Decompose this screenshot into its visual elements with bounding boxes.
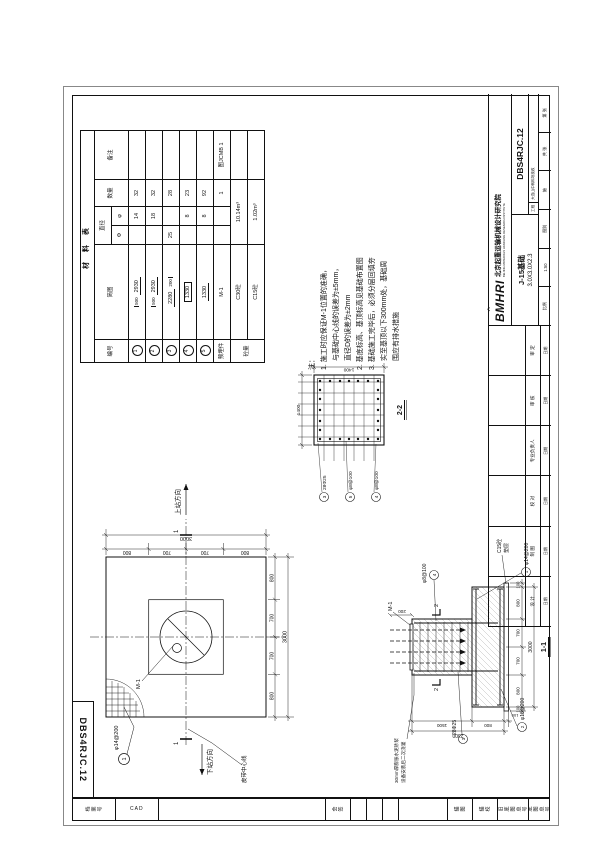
section-2-2-drawing: 1400 1400 3 28Φ25 5 φ8@100 4 φ8@100 (290, 357, 440, 507)
table-row: C15砼 1.02m³ (248, 131, 265, 363)
drawing-number: DBS4RJC.12 (512, 94, 529, 214)
col-header-dia-phi2: Φ (112, 226, 129, 245)
bar1-bubble: 1 (122, 757, 128, 760)
project-name: 大连山中转料场技改 (531, 165, 536, 201)
svg-text:700: 700 (516, 657, 521, 665)
svg-text:800: 800 (484, 723, 492, 728)
section11-m1: M-1 200 (388, 602, 414, 625)
svg-text:3: 3 (322, 495, 327, 498)
row-no-bubble: 3 (166, 346, 177, 357)
scale-value: 1:50 (539, 248, 551, 287)
svg-text:700: 700 (201, 549, 210, 555)
corner-drawing-number-box: DBS4RJC.12 (72, 701, 94, 799)
material-table-title: 材 料 表 (81, 131, 95, 363)
svg-text:φ18@200: φ18@200 (520, 698, 526, 720)
type-value: 施 (539, 170, 551, 209)
signature-col: 专业负责人 日期 (489, 425, 551, 475)
col-header-qty: 数量 (95, 180, 129, 207)
svg-text:4: 4 (374, 495, 379, 498)
section22-bar4-label: 4 φ8@100 (372, 444, 381, 502)
svg-text:2: 2 (434, 604, 440, 607)
svg-text:5: 5 (348, 495, 353, 498)
section22-bar-dots (319, 380, 379, 440)
scale-label: 比例 (539, 286, 551, 325)
foundation-plan-drawing: 1 φ14@200 M-1 1 1 皮带中心线 上站方向 下站方向 (94, 477, 309, 787)
drawing-sheet: 档案号 CAD 会签 描图 描校 旧底图总号 底图总号 DBS4RJC.12 (63, 86, 559, 826)
drawing-number-cell: DBS4RJC.12 工程 大连山中转料场技改 (512, 94, 539, 214)
drawing-title-cell: J-15基础 3.0X3.0X2.3 (512, 214, 539, 325)
note-line: 围应有排水措施 (391, 114, 403, 370)
svg-text:800: 800 (270, 692, 276, 701)
table-row: 1 5002930 14 32 (129, 131, 146, 363)
institute-name-en: BEIJING MATERIALS HANDLING RESEARCH INST… (502, 194, 506, 277)
plan-belt-label: 皮带中心线 (188, 729, 248, 783)
svg-text:700: 700 (516, 629, 521, 637)
svg-text:2-2: 2-2 (397, 405, 404, 415)
note-line: 与基础中心线的误差为±5mm， (331, 114, 343, 370)
svg-text:30mm厚膨胀水泥砂浆: 30mm厚膨胀水泥砂浆 (393, 738, 400, 783)
signature-col: 审 核 日期 (489, 375, 551, 425)
section22-bar5-label: 5 φ8@100 (346, 441, 355, 502)
svg-text:1500: 1500 (436, 723, 447, 728)
col-header-no: 编号 (95, 340, 129, 363)
svg-text:M-1: M-1 (388, 602, 394, 611)
note-line: 1. 施工时应保证M-1位置的准确， (319, 114, 331, 370)
binding-cell-tracing: 描图 (448, 798, 473, 820)
svg-text:2: 2 (520, 725, 525, 728)
section11-bar2: 2 φ18@200 (501, 689, 527, 732)
section11-caption: 1-1 (541, 637, 551, 657)
material-table: 材 料 表 编号 简图 直径 数量 备注 Φ φ 1 5002930 14 32… (80, 130, 265, 363)
svg-text:700: 700 (270, 652, 276, 661)
binding-cell-tracing-check: 描校 (473, 798, 498, 820)
svg-text:2300: 2300 (452, 732, 463, 738)
table-row: 3 2280200 25 28 (163, 131, 180, 363)
svg-text:1-1: 1-1 (541, 642, 548, 652)
svg-text:700: 700 (270, 614, 276, 623)
binding-cell-empty (367, 798, 383, 820)
note-line: 实至基顶以下300mm处，基础周 (379, 114, 391, 370)
note-line: 2. 基底标高、基顶标高见基础布置图 (355, 114, 367, 370)
plan-direction-up: 上站方向 (173, 484, 189, 515)
note-line: 注： (307, 114, 319, 370)
binding-strip: 档案号 CAD 会签 描图 描校 旧底图总号 底图总号 (72, 797, 550, 821)
svg-text:皮带中心线: 皮带中心线 (240, 755, 248, 783)
foundation-size: 3.0X3.0X2.3 (528, 253, 534, 286)
binding-cell-empty (399, 798, 448, 820)
table-row: 2 5002930 18 32 (146, 131, 163, 363)
row-no-bubble: 1 (132, 346, 143, 357)
corner-drawing-number: DBS4RJC.12 (78, 718, 88, 783)
svg-text:800: 800 (516, 687, 521, 695)
signature-col: 制 图 日期 (489, 526, 551, 576)
screenshot-root: { "sheet": { "corner_number": "DBS4RJC.1… (0, 0, 600, 850)
institute-row: ⌃BMHRI 北京起重运输机械设计研究院 BEIJING MATERIALS H… (489, 94, 512, 325)
section22-outline (314, 375, 384, 445)
note-line: 3. 基础施工完毕后，必须分层回填夯 (367, 114, 379, 370)
signature-col: 设 计 日期 (489, 576, 551, 626)
svg-text:700: 700 (163, 549, 172, 555)
svg-text:200: 200 (398, 609, 406, 614)
binding-cell-cad: CAD (116, 798, 159, 820)
row-no-bubble: 2 (149, 346, 160, 357)
col-header-remark: 备注 (95, 131, 129, 180)
col-header-sketch: 简图 (95, 245, 129, 340)
svg-text:设备安装后二次浇灌: 设备安装后二次浇灌 (400, 741, 407, 783)
note-line: 直径D的误差为±2mm (343, 114, 355, 370)
binding-cell-archive: 档案号 (73, 798, 116, 820)
title-block: 设 计 日期 制 图 日期 校 对 日期 专业负责人 日期 审 核 日期 (488, 94, 551, 627)
plan-m1-label: M-1 (136, 646, 173, 689)
svg-text:1: 1 (174, 741, 180, 745)
col-header-dia-phi1: φ (112, 207, 129, 226)
svg-text:800: 800 (241, 549, 250, 555)
pages-total: 共 张 (539, 132, 551, 171)
signature-col: 校 对 日期 (489, 475, 551, 525)
bmhri-logo-icon: ⌃BMHRI (494, 280, 506, 322)
grout-note: 30mm厚膨胀水泥砂浆 设备安装后二次浇灌 (393, 673, 414, 783)
plan-direction-down: 下站方向 (200, 744, 215, 775)
title-block-right: ⌃BMHRI 北京起重运输机械设计研究院 BEIJING MATERIALS H… (489, 94, 551, 325)
table-row: 4 1330 8 23 (180, 131, 197, 363)
svg-text:28Φ25: 28Φ25 (322, 475, 328, 490)
svg-text:3000: 3000 (180, 535, 192, 541)
svg-text:1: 1 (174, 529, 180, 533)
section11-bar4: φ8@100 4 (422, 563, 439, 621)
section22-mat-bars (298, 375, 384, 461)
svg-text:M-1: M-1 (136, 679, 142, 689)
section22-bar3-label: 3 28Φ25 (318, 443, 329, 502)
table-row: 砼量 C30砼 10.14m³ (231, 131, 248, 363)
binding-cell-empty (383, 798, 399, 820)
svg-text:4: 4 (432, 573, 437, 576)
title-block-misc-row: 比例 1:50 图别 施 共 张 第 张 (539, 94, 551, 325)
row-no-bubble: 5 (200, 346, 211, 357)
project-label: 工程 (529, 202, 538, 214)
binding-cell-empty (351, 798, 367, 820)
signature-grid: 设 计 日期 制 图 日期 校 对 日期 专业负责人 日期 审 核 日期 (489, 325, 551, 626)
general-notes: 注： 1. 施工时应保证M-1位置的准确， 与基础中心线的误差为±5mm， 直径… (307, 114, 403, 370)
binding-cell-old-negative-no: 旧底图总号 (498, 798, 529, 820)
svg-text:2: 2 (434, 688, 440, 691)
section11-dim-left-text: 1500 800 100 2300 (436, 713, 518, 738)
signature-col: 审 定 日期 (489, 326, 551, 375)
table-row: 5 1330 8 92 (197, 131, 214, 363)
svg-text:100: 100 (516, 705, 521, 713)
row-no-bubble: 4 (183, 346, 194, 357)
svg-text:3000: 3000 (283, 631, 289, 643)
pages-current: 第 张 (539, 94, 551, 132)
binding-cell-countersign: 会签 (326, 798, 351, 820)
bar1-text: φ14@200 (114, 726, 120, 750)
section22-caption: 2-2 (397, 400, 407, 420)
svg-text:下站方向: 下站方向 (205, 749, 214, 775)
svg-text:800: 800 (123, 549, 132, 555)
svg-text:3000: 3000 (528, 641, 534, 652)
drawing-title: J-15基础 (516, 255, 527, 285)
svg-text:φ8@100: φ8@100 (348, 471, 354, 490)
svg-text:100: 100 (511, 713, 518, 718)
svg-text:上站方向: 上站方向 (173, 489, 182, 515)
svg-text:800: 800 (270, 574, 276, 583)
binding-cell-negative-no: 底图总号 (529, 798, 549, 820)
institute-name-cn: 北京起重运输机械设计研究院 (493, 194, 502, 277)
table-row: 预埋件 M-1 1 图JCMB 1 (214, 131, 231, 363)
type-label: 图别 (539, 209, 551, 248)
svg-text:φ8@100: φ8@100 (422, 563, 428, 583)
binding-cell-empty (159, 798, 326, 820)
col-header-dia: 直径 (95, 207, 112, 245)
section22-dim-top-text: 1400 (296, 404, 302, 415)
